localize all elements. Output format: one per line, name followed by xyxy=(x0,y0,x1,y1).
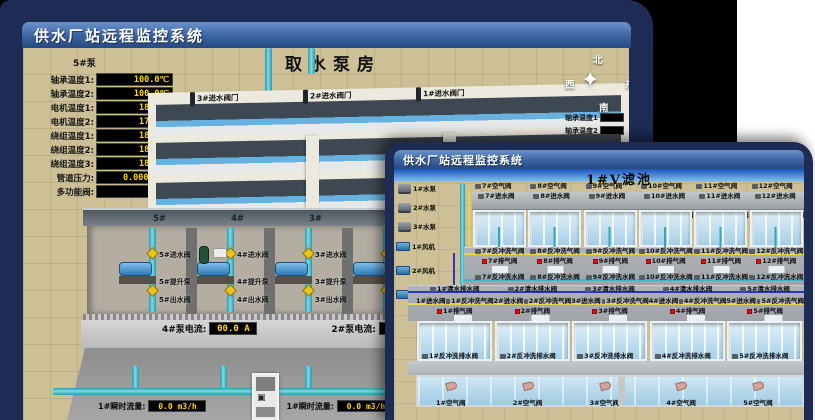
drain-valve-label: 4#反冲洗排水阀 xyxy=(662,353,711,360)
valve-icon xyxy=(586,249,592,254)
pump-icon[interactable] xyxy=(275,262,308,276)
side-reading-row: 轴承温度1 xyxy=(565,112,629,123)
backwash-water-valve[interactable]: 10#反冲洗水阀 xyxy=(638,274,693,281)
blower-label: 1#风机 xyxy=(412,241,435,251)
backwash-air-label: 3#反冲洗气阀 xyxy=(606,298,648,305)
drain-valve[interactable]: 3#反冲洗排水阀 xyxy=(577,353,633,360)
clean-drain-valve[interactable]: 5#清水排水阀 xyxy=(726,286,804,293)
panel-reading-row: 轴承温度1: 100.0℃ xyxy=(25,73,173,86)
compass-west: 西 xyxy=(565,77,575,91)
inlet-valve-label: 8#进水阀 xyxy=(540,193,569,200)
inlet-valve-label: 10#进水阀 xyxy=(651,193,685,200)
cell-wall: 8#进水阀 8#反冲洗排水阀 xyxy=(527,192,582,210)
valve-label: 8#反冲洗气阀 xyxy=(537,248,579,255)
valve-icon xyxy=(422,354,428,359)
reading-label: 绕组温度3: xyxy=(51,158,94,170)
scene-title-pump-house: 取水泵房 xyxy=(248,50,418,75)
pump-pedestal xyxy=(197,276,234,284)
valve-icon xyxy=(755,194,761,199)
valve-label: 12#反冲洗气阀 xyxy=(756,248,803,255)
bay-inlet-valve-label: 5#进水阀 xyxy=(159,250,191,260)
pump-pedestal xyxy=(275,276,312,284)
valve-icon xyxy=(749,249,755,254)
pump-icon xyxy=(398,184,411,192)
elbow-pipe-icon xyxy=(522,381,535,392)
inlet-valve[interactable]: 10#进水阀 xyxy=(644,193,685,200)
fan-icon xyxy=(396,266,410,275)
valve-icon xyxy=(694,275,700,280)
valve-icon xyxy=(699,194,705,199)
valve-icon xyxy=(524,299,528,304)
walkway-band xyxy=(408,361,804,375)
valve-icon xyxy=(585,287,591,292)
exhaust-valve[interactable]: 12#排气阀 xyxy=(749,258,804,265)
inlet-valve-label: 12#进水阀 xyxy=(762,193,796,200)
cell-wall: 7#进水阀 7#反冲洗排水阀 xyxy=(472,192,527,210)
bay-inlet-valve-label: 3#进水阀 xyxy=(315,250,347,260)
valve-icon xyxy=(475,184,481,189)
compass-east: 东 xyxy=(625,77,629,91)
alarm-flag-icon xyxy=(670,309,675,314)
side-reading-value xyxy=(600,126,624,135)
air-valve-label: 2#空气阀 xyxy=(513,397,542,407)
reading-label: 绕组温度2: xyxy=(51,144,94,156)
valve-label: 7#反冲洗气阀 xyxy=(482,248,524,255)
pump-bay[interactable]: 3# 3#进水阀 3#提升泵 3#出水阀 xyxy=(275,228,353,314)
flow-display: 1#瞬时流量: 0.0 m3/h xyxy=(98,400,206,412)
side-reading-label: 轴承温度2 xyxy=(565,126,598,136)
alarm-flag-icon xyxy=(537,259,542,264)
valve-icon xyxy=(478,194,484,199)
reading-label: 电机温度2: xyxy=(51,116,94,128)
pump-icon xyxy=(398,203,411,211)
trough-air-valve[interactable]: 3#空气阀 xyxy=(572,377,649,405)
inlet-valve[interactable]: 11#进水阀 xyxy=(699,193,740,200)
inlet-valve[interactable]: 3#进水阀门 xyxy=(190,90,303,106)
cell-wall: 12#进水阀 12#反冲洗排水阀 xyxy=(749,192,804,210)
exhaust-valve[interactable]: 10#排气阀 xyxy=(638,258,693,265)
valve-icon xyxy=(757,299,761,304)
valve-label: 2#清水排水阀 xyxy=(515,286,557,293)
filter-pool-scene: 1#V滤池 1#水泵 2#水泵 3#水泵 xyxy=(394,169,804,420)
alarm-flag-icon xyxy=(646,259,651,264)
valve-label: 9#反冲洗气阀 xyxy=(593,248,635,255)
inlet-valve[interactable]: 8#进水阀 xyxy=(533,193,569,200)
backwash-air-row: 7#反冲洗气阀 8#反冲洗气阀 9#反冲洗气阀 10#反冲洗气阀 xyxy=(472,248,804,255)
backwash-water-row: 7#反冲洗水阀 8#反冲洗水阀 9#反冲洗水阀 10#反冲洗水阀 xyxy=(472,274,804,281)
inlet-valve-label: 2#进水阀门 xyxy=(310,90,352,104)
inlet-valve-label: 5#进水阀 xyxy=(726,298,755,305)
tank-icon xyxy=(199,246,209,264)
bay-outlet-valve-label: 3#出水阀 xyxy=(315,295,347,305)
bay-outlet-valve-label: 4#出水阀 xyxy=(237,295,269,305)
elbow-pipe-icon xyxy=(445,381,458,392)
trough-air-valve[interactable]: 1#空气阀 xyxy=(418,377,495,405)
manifold-valve-pair[interactable]: 1#进水阀 1#反冲洗气阀 xyxy=(416,298,494,305)
pool: 2#反冲洗排水阀 xyxy=(495,321,570,361)
valve-label: 7#排气阀 xyxy=(488,258,517,265)
valve-icon xyxy=(679,299,683,304)
reading-label: 轴承温度2: xyxy=(51,88,94,100)
back-window-titlebar[interactable]: 供水厂站远程监控系统 xyxy=(22,22,631,48)
outlet-trough: 1#空气阀 2#空气阀 3#空气阀 4#空气阀 5#空气阀 xyxy=(416,375,804,407)
bay-pump-label: 4#提升泵 xyxy=(237,277,269,287)
current-label: 2#泵电流: xyxy=(331,322,375,335)
air-valve-label: 5#空气阀 xyxy=(743,397,772,407)
cyan-pipe xyxy=(308,48,315,74)
pump-label: 1#水泵 xyxy=(413,183,436,193)
valve-icon xyxy=(530,249,536,254)
drain-valve-label: 3#反冲洗排水阀 xyxy=(584,353,633,360)
valve-icon xyxy=(430,287,436,292)
backwash-air-label: 4#反冲洗气阀 xyxy=(684,298,726,305)
side-reading-label: 轴承温度1 xyxy=(565,113,598,123)
bay-inlet-valve-label: 4#进水阀 xyxy=(237,250,269,260)
clean-drain-valve[interactable]: 1#清水排水阀 xyxy=(416,286,494,293)
clean-drain-valve[interactable]: 3#清水排水阀 xyxy=(571,286,649,293)
side-reading-value xyxy=(600,113,624,122)
pump-bay[interactable]: 5# 5#进水阀 5#提升泵 5#出水阀 xyxy=(119,228,197,314)
valve-icon xyxy=(644,194,650,199)
valve-icon xyxy=(500,354,506,359)
backwash-air-valve[interactable]: 8#反冲洗气阀 xyxy=(527,248,582,255)
elbow-pipe-icon xyxy=(676,381,689,392)
pipe-gallery-band: 7#反冲洗气阀 8#反冲洗气阀 9#反冲洗气阀 10#反冲洗气阀 xyxy=(464,247,804,285)
front-window-title: 供水厂站远程监控系统 xyxy=(403,152,523,168)
exhaust-valve[interactable]: 8#排气阀 xyxy=(527,258,582,265)
backwash-water-valve[interactable]: 11#反冲洗水阀 xyxy=(693,274,748,281)
valve-icon xyxy=(602,299,606,304)
inlet-valve-label: 4#进水阀 xyxy=(649,298,678,305)
valve-icon xyxy=(475,249,481,254)
valve-label: 10#反冲洗气阀 xyxy=(646,248,693,255)
valve-icon xyxy=(752,184,758,189)
pool: 3#反冲洗排水阀 xyxy=(572,321,647,361)
reading-value: 100.0℃ xyxy=(96,73,173,86)
reading-label: 多功能阀: xyxy=(57,186,94,198)
water-pump[interactable]: 1#水泵 xyxy=(398,183,436,193)
inlet-valve[interactable]: 12#进水阀 xyxy=(755,193,796,200)
alarm-flag-icon xyxy=(593,259,598,264)
compass-star-icon: ✦ xyxy=(581,68,599,93)
flow-display-row: 1#瞬时流量: 0.0 m3/h 1#瞬时流量: 0.0 m3/h xyxy=(98,400,395,412)
valve-icon xyxy=(639,275,645,280)
clean-drain-valve[interactable]: 2#清水排水阀 xyxy=(494,286,572,293)
backwash-air-valve[interactable]: 7#反冲洗气阀 xyxy=(472,248,527,255)
alarm-flag-icon xyxy=(701,259,706,264)
current-value: 00.0 A xyxy=(209,322,257,335)
valve-icon xyxy=(508,287,514,292)
valve-icon xyxy=(475,275,481,280)
valve-label: 3#清水排水阀 xyxy=(592,286,634,293)
valve-icon xyxy=(416,87,421,101)
drain-valve[interactable]: 4#反冲洗排水阀 xyxy=(655,353,711,360)
blower[interactable]: 1#风机 xyxy=(396,241,435,251)
backwash-water-valve[interactable]: 9#反冲洗水阀 xyxy=(583,274,638,281)
desktop: 供水厂站远程监控系统 取水泵房 5#泵 轴承温度1: 100.0℃ 轴承温度2:… xyxy=(0,0,815,420)
pump-icon[interactable] xyxy=(197,262,230,276)
valve-label: 1#清水排水阀 xyxy=(437,286,479,293)
pump-icon[interactable] xyxy=(353,262,386,276)
trough-pier xyxy=(618,377,625,405)
exhaust-valve[interactable]: 11#排气阀 xyxy=(693,258,748,265)
backwash-water-valve[interactable]: 12#反冲洗水阀 xyxy=(749,274,804,281)
trough-air-valve[interactable]: 5#空气阀 xyxy=(725,377,802,405)
valve-label: 9#排气阀 xyxy=(599,258,628,265)
valve-icon xyxy=(639,249,645,254)
backwash-air-valve[interactable]: 10#反冲洗气阀 xyxy=(638,248,693,255)
valve-label: 10#排气阀 xyxy=(652,258,686,265)
inlet-valve-label: 3#进水阀门 xyxy=(197,92,239,106)
bottom-manifold-row: 1#进水阀 1#反冲洗气阀 2#进水阀 2#反冲洗气阀 3#进水阀 3#反冲洗气… xyxy=(416,298,804,305)
air-valve-label: 1#空气阀 xyxy=(436,397,465,407)
cell-wall: 11#进水阀 11#反冲洗排水阀 xyxy=(693,192,748,210)
backwash-water-valve[interactable]: 8#反冲洗水阀 xyxy=(527,274,582,281)
clean-drain-row: 1#清水排水阀 2#清水排水阀 3#清水排水阀 4#清水排水阀 xyxy=(416,286,804,293)
back-window-title: 供水厂站远程监控系统 xyxy=(34,25,204,46)
backwash-water-valve[interactable]: 7#反冲洗水阀 xyxy=(472,274,527,281)
flow-label: 1#瞬时流量: xyxy=(286,401,333,412)
drain-valve-label: 1#反冲洗排水阀 xyxy=(429,353,478,360)
exhaust-valve[interactable]: 7#排气阀 xyxy=(472,258,527,265)
pool: 1#反冲洗排水阀 xyxy=(417,321,492,361)
front-window: 供水厂站远程监控系统 1#V滤池 1#水泵 2#水泵 3#水泵 xyxy=(385,142,813,420)
valve-icon xyxy=(663,287,669,292)
air-valve-label: 12#空气阀 xyxy=(759,183,793,190)
bay-outlet-valve-label: 5#出水阀 xyxy=(159,295,191,305)
pump5-label: 5#泵 xyxy=(73,56,173,69)
flow-display: 1#瞬时流量: 0.0 m3/h xyxy=(286,400,394,412)
bay-number: 5# xyxy=(153,214,166,224)
alarm-flag-icon xyxy=(437,309,442,314)
drain-valve[interactable]: 2#反冲洗排水阀 xyxy=(500,353,556,360)
valve-icon xyxy=(303,90,308,104)
backwash-air-valve[interactable]: 11#反冲洗气阀 xyxy=(693,248,748,255)
valve-label: 7#反冲洗水阀 xyxy=(482,274,524,281)
trough-air-valve[interactable]: 2#空气阀 xyxy=(495,377,572,405)
alarm-flag-icon xyxy=(482,259,487,264)
water-pump[interactable]: 3#水泵 xyxy=(398,221,436,231)
alarm-flag-icon xyxy=(592,309,597,314)
alarm-flag-icon xyxy=(515,309,520,314)
inlet-valve-label: 2#进水阀 xyxy=(494,298,523,305)
placard xyxy=(213,248,227,258)
air-valve[interactable]: 12#空气阀 xyxy=(752,183,793,190)
pump-icon xyxy=(398,222,411,230)
pump-label: 2#水泵 xyxy=(413,202,436,212)
alarm-flag-icon xyxy=(756,259,761,264)
backwash-air-label: 1#反冲洗气阀 xyxy=(451,298,493,305)
pool: 4#反冲洗排水阀 xyxy=(650,321,725,361)
valve-label: 11#反冲洗水阀 xyxy=(701,274,748,281)
alarm-flag-icon xyxy=(747,309,752,314)
backwash-air-label: 5#反冲洗气阀 xyxy=(761,298,803,305)
trough-air-valve[interactable]: 4#空气阀 xyxy=(648,377,725,405)
inlet-valve-label: 1#进水阀门 xyxy=(423,87,465,101)
exhaust-valve-row: 7#排气阀 8#排气阀 9#排气阀 10#排气阀 11#排气阀 xyxy=(472,258,804,265)
inlet-valve-label: 1#进水阀 xyxy=(416,298,445,305)
valve-label: 11#排气阀 xyxy=(707,258,741,265)
valve-icon xyxy=(530,275,536,280)
pipe-gallery-band: 1#清水排水阀 2#清水排水阀 3#清水排水阀 4#清水排水阀 xyxy=(408,285,804,321)
manifold-valve-pair[interactable]: 5#进水阀 5#反冲洗气阀 xyxy=(726,298,804,305)
junction-boxes xyxy=(492,266,804,273)
valve-icon xyxy=(589,194,595,199)
reading-label: 绕组温度1: xyxy=(51,130,94,142)
air-valve[interactable]: 7#空气阀 xyxy=(475,183,511,190)
cabinet-panel xyxy=(256,377,275,391)
side-reading-row: 轴承温度2 xyxy=(565,125,629,136)
valve-icon xyxy=(749,275,755,280)
drain-valve[interactable]: 1#反冲洗排水阀 xyxy=(422,353,478,360)
inlet-valve[interactable]: 9#进水阀 xyxy=(589,193,625,200)
pool: 5#反冲洗排水阀 xyxy=(727,321,802,361)
backwash-air-valve[interactable]: 12#反冲洗气阀 xyxy=(749,248,804,255)
elbow-pipe-icon xyxy=(752,381,765,392)
inlet-valve[interactable]: 1#进水阀门 xyxy=(416,85,529,101)
valve-icon xyxy=(190,92,195,106)
flow-label: 1#瞬时流量: xyxy=(98,401,145,412)
side-readings: 轴承温度1 轴承温度2 xyxy=(565,112,629,138)
bay-pump-label: 3#提升泵 xyxy=(315,277,347,287)
manifold-valve-pair[interactable]: 4#进水阀 4#反冲洗气阀 xyxy=(649,298,727,305)
reading-label: 管道压力: xyxy=(57,172,94,184)
compass-north: 北 xyxy=(593,52,603,66)
manifold-valve-pair[interactable]: 2#进水阀 2#反冲洗气阀 xyxy=(494,298,572,305)
scene-title-filter-pool: 1#V滤池 xyxy=(519,169,719,188)
front-window-titlebar[interactable]: 供水厂站远程监控系统 xyxy=(394,150,804,169)
compass: ✦ 北 西 南 东 xyxy=(551,52,629,118)
flow-meter-cabinet[interactable]: ▣ xyxy=(252,373,279,420)
backwash-air-label: 2#反冲洗气阀 xyxy=(529,298,571,305)
inlet-valve[interactable]: 2#进水阀门 xyxy=(303,87,416,103)
valve-label: 11#反冲洗气阀 xyxy=(701,248,748,255)
valve-icon xyxy=(740,287,746,292)
fan-icon xyxy=(396,242,410,251)
valve-icon xyxy=(533,194,539,199)
valve-label: 9#反冲洗水阀 xyxy=(593,274,635,281)
valve-icon xyxy=(586,275,592,280)
valve-label: 8#排气阀 xyxy=(543,258,572,265)
bay-number: 3# xyxy=(309,214,322,224)
valve-label: 12#反冲洗水阀 xyxy=(756,274,803,281)
valve-icon xyxy=(577,354,583,359)
inlet-valve-label: 3#进水阀 xyxy=(571,298,600,305)
valve-label: 12#排气阀 xyxy=(762,258,796,265)
bay-number: 4# xyxy=(231,214,244,224)
flow-value: 0.0 m3/h xyxy=(148,400,206,412)
pump-current-display: 4#泵电流: 00.0 A xyxy=(162,322,257,335)
clean-drain-valve[interactable]: 4#清水排水阀 xyxy=(649,286,727,293)
water-pump[interactable]: 2#水泵 xyxy=(398,202,436,212)
reading-label: 轴承温度1: xyxy=(51,74,94,86)
drain-valve-label: 2#反冲洗排水阀 xyxy=(507,353,556,360)
drain-valve[interactable]: 5#反冲洗排水阀 xyxy=(732,353,788,360)
inlet-valve-label: 11#进水阀 xyxy=(706,193,740,200)
valve-icon xyxy=(732,354,738,359)
valve-icon xyxy=(446,299,450,304)
pump-bay[interactable]: 4# 4#进水阀 4#提升泵 4#出水阀 xyxy=(197,228,275,314)
valve-label: 5#清水排水阀 xyxy=(747,286,789,293)
bay-pump-label: 5#提升泵 xyxy=(159,277,191,287)
pump-pedestal xyxy=(119,276,156,284)
inlet-valve-label: 9#进水阀 xyxy=(596,193,625,200)
manifold-valve-pair[interactable]: 3#进水阀 3#反冲洗气阀 xyxy=(571,298,649,305)
channel-pillar xyxy=(306,135,319,213)
inlet-valve[interactable]: 7#进水阀 xyxy=(478,193,514,200)
air-valve-label: 7#空气阀 xyxy=(482,183,511,190)
air-valve-label: 4#空气阀 xyxy=(666,397,695,407)
cell-wall: 9#进水阀 9#反冲洗排水阀 xyxy=(583,192,638,210)
valve-icon xyxy=(694,249,700,254)
valve-label: 4#清水排水阀 xyxy=(670,286,712,293)
backwash-air-valve[interactable]: 9#反冲洗气阀 xyxy=(583,248,638,255)
valve-icon xyxy=(655,354,661,359)
drain-valve-label: 5#反冲洗排水阀 xyxy=(739,353,788,360)
valve-label: 10#反冲洗水阀 xyxy=(646,274,693,281)
valve-label: 8#反冲洗水阀 xyxy=(537,274,579,281)
inlet-valve-label: 7#进水阀 xyxy=(485,193,514,200)
air-valve-label: 3#空气阀 xyxy=(590,397,619,407)
pump-icon[interactable] xyxy=(119,262,152,276)
pump-label: 3#水泵 xyxy=(413,221,436,231)
elbow-pipe-icon xyxy=(599,381,612,392)
current-label: 4#泵电流: xyxy=(162,322,206,335)
exhaust-valve[interactable]: 9#排气阀 xyxy=(583,258,638,265)
cell-wall: 10#进水阀 10#反冲洗排水阀 xyxy=(638,192,693,210)
reading-label: 电机温度1: xyxy=(51,102,94,114)
